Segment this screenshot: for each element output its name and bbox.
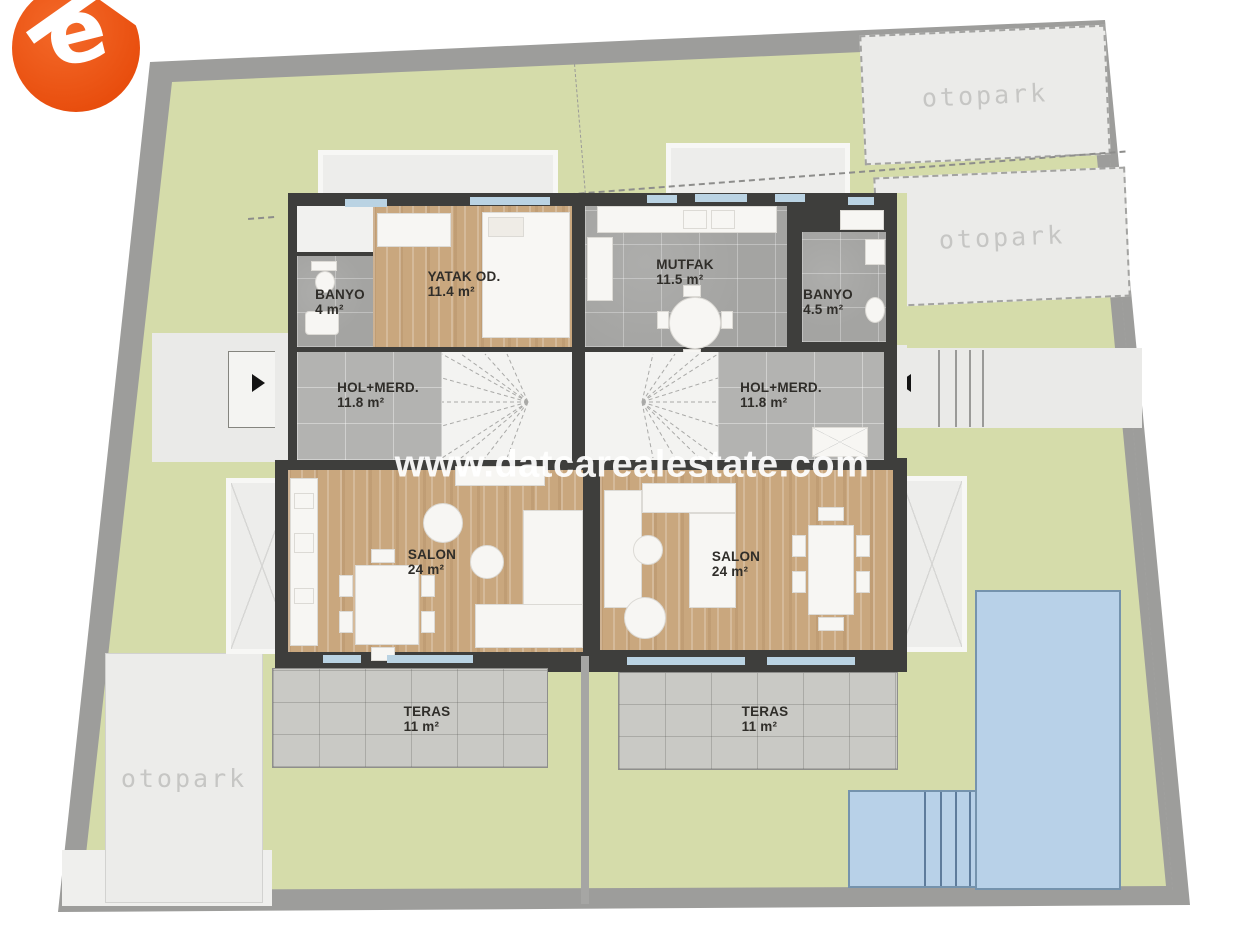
room-area: 11.8 m² bbox=[337, 395, 419, 410]
room-area: 11.5 m² bbox=[656, 272, 713, 287]
dining-chair bbox=[818, 507, 844, 521]
right-path-step bbox=[955, 350, 957, 427]
window bbox=[323, 655, 361, 663]
room-label-banyo-right: BANYO 4.5 m² bbox=[803, 287, 853, 317]
counter-sink bbox=[294, 493, 314, 509]
dining-table-right bbox=[808, 525, 854, 615]
counter-cabinet bbox=[294, 588, 314, 604]
realestate-logo: e bbox=[12, 0, 140, 112]
watermark-text: www.datcarealestate.com bbox=[395, 444, 870, 487]
dining-chair bbox=[818, 617, 844, 631]
parking-area-top-first: otopark bbox=[859, 25, 1110, 166]
room-label-teras-right: TERAS 11 m² bbox=[742, 704, 789, 734]
right-entry-path bbox=[898, 348, 1142, 428]
window bbox=[647, 195, 677, 203]
room-label-salon-right: SALON 24 m² bbox=[712, 549, 760, 579]
pool-step-line bbox=[969, 792, 971, 886]
room-name: YATAK OD. bbox=[428, 269, 501, 284]
right-path-step bbox=[969, 350, 971, 427]
parking-area-top-second: otopark bbox=[873, 167, 1130, 308]
parking-label-top-first: otopark bbox=[921, 78, 1049, 112]
room-name: MUTFAK bbox=[656, 257, 713, 272]
room-area: 11 m² bbox=[742, 719, 789, 734]
room-label-mutfak: MUTFAK 11.5 m² bbox=[656, 257, 713, 287]
dining-chair bbox=[339, 575, 353, 597]
room-name: SALON bbox=[408, 547, 456, 562]
window bbox=[775, 194, 805, 202]
counter-cooktop bbox=[294, 533, 314, 553]
dining-chair bbox=[339, 611, 353, 633]
swimming-pool bbox=[975, 590, 1121, 890]
pouf bbox=[633, 535, 663, 565]
parking-area-bottom: otopark bbox=[105, 653, 263, 903]
swimming-pool-steps bbox=[848, 790, 977, 888]
pouf bbox=[470, 545, 504, 579]
parking-label-bottom: otopark bbox=[121, 764, 247, 793]
room-name: TERAS bbox=[742, 704, 789, 719]
room-area: 24 m² bbox=[712, 564, 760, 579]
pool-step-line bbox=[955, 792, 957, 886]
side-balcony-right bbox=[897, 476, 967, 652]
room-name: BANYO bbox=[803, 287, 853, 302]
room-area: 11 m² bbox=[404, 719, 451, 734]
dining-chair bbox=[421, 575, 435, 597]
dining-chair bbox=[371, 549, 395, 563]
room-area: 11.4 m² bbox=[428, 284, 501, 299]
entry-arrow-left-icon bbox=[252, 374, 265, 392]
window bbox=[848, 197, 874, 205]
room-label-hol-right: HOL+MERD. 11.8 m² bbox=[740, 380, 822, 410]
room-area: 4 m² bbox=[315, 302, 365, 317]
window bbox=[627, 657, 745, 665]
room-name: HOL+MERD. bbox=[740, 380, 822, 395]
room-label-banyo-left: BANYO 4 m² bbox=[315, 287, 365, 317]
garden-divider-fence bbox=[581, 656, 589, 904]
pool-step-line bbox=[940, 792, 942, 886]
dining-chair bbox=[421, 611, 435, 633]
room-name: HOL+MERD. bbox=[337, 380, 419, 395]
parking-label-top-second: otopark bbox=[938, 220, 1066, 254]
room-name: TERAS bbox=[404, 704, 451, 719]
dining-chair bbox=[856, 535, 870, 557]
room-label-teras-left: TERAS 11 m² bbox=[404, 704, 451, 734]
round-rug bbox=[624, 597, 666, 639]
dining-chair bbox=[856, 571, 870, 593]
sofa-right-unit-back bbox=[642, 483, 736, 513]
upper-balcony-right bbox=[666, 143, 850, 200]
window bbox=[345, 199, 387, 207]
room-label-salon-left: SALON 24 m² bbox=[408, 547, 456, 577]
pool-step-line bbox=[924, 792, 926, 886]
window bbox=[470, 197, 550, 205]
room-label-hol-left: HOL+MERD. 11.8 m² bbox=[337, 380, 419, 410]
sofa-left-unit-chaise bbox=[475, 604, 583, 648]
room-label-yatak-odasi: YATAK OD. 11.4 m² bbox=[428, 269, 501, 299]
dining-table-left bbox=[355, 565, 419, 645]
room-name: SALON bbox=[712, 549, 760, 564]
dining-chair bbox=[792, 535, 806, 557]
sofa-left-unit bbox=[523, 510, 583, 612]
room-area: 4.5 m² bbox=[803, 302, 853, 317]
window bbox=[695, 194, 747, 202]
room-name: BANYO bbox=[315, 287, 365, 302]
twin-villa-building bbox=[275, 193, 907, 672]
right-path-step bbox=[982, 350, 984, 427]
round-rug bbox=[423, 503, 463, 543]
window bbox=[387, 655, 473, 663]
dining-chair bbox=[792, 571, 806, 593]
floor-plan-canvas: otopark otopark otopark bbox=[0, 0, 1250, 930]
room-area: 24 m² bbox=[408, 562, 456, 577]
room-area: 11.8 m² bbox=[740, 395, 822, 410]
right-path-step bbox=[938, 350, 940, 427]
window bbox=[767, 657, 855, 665]
